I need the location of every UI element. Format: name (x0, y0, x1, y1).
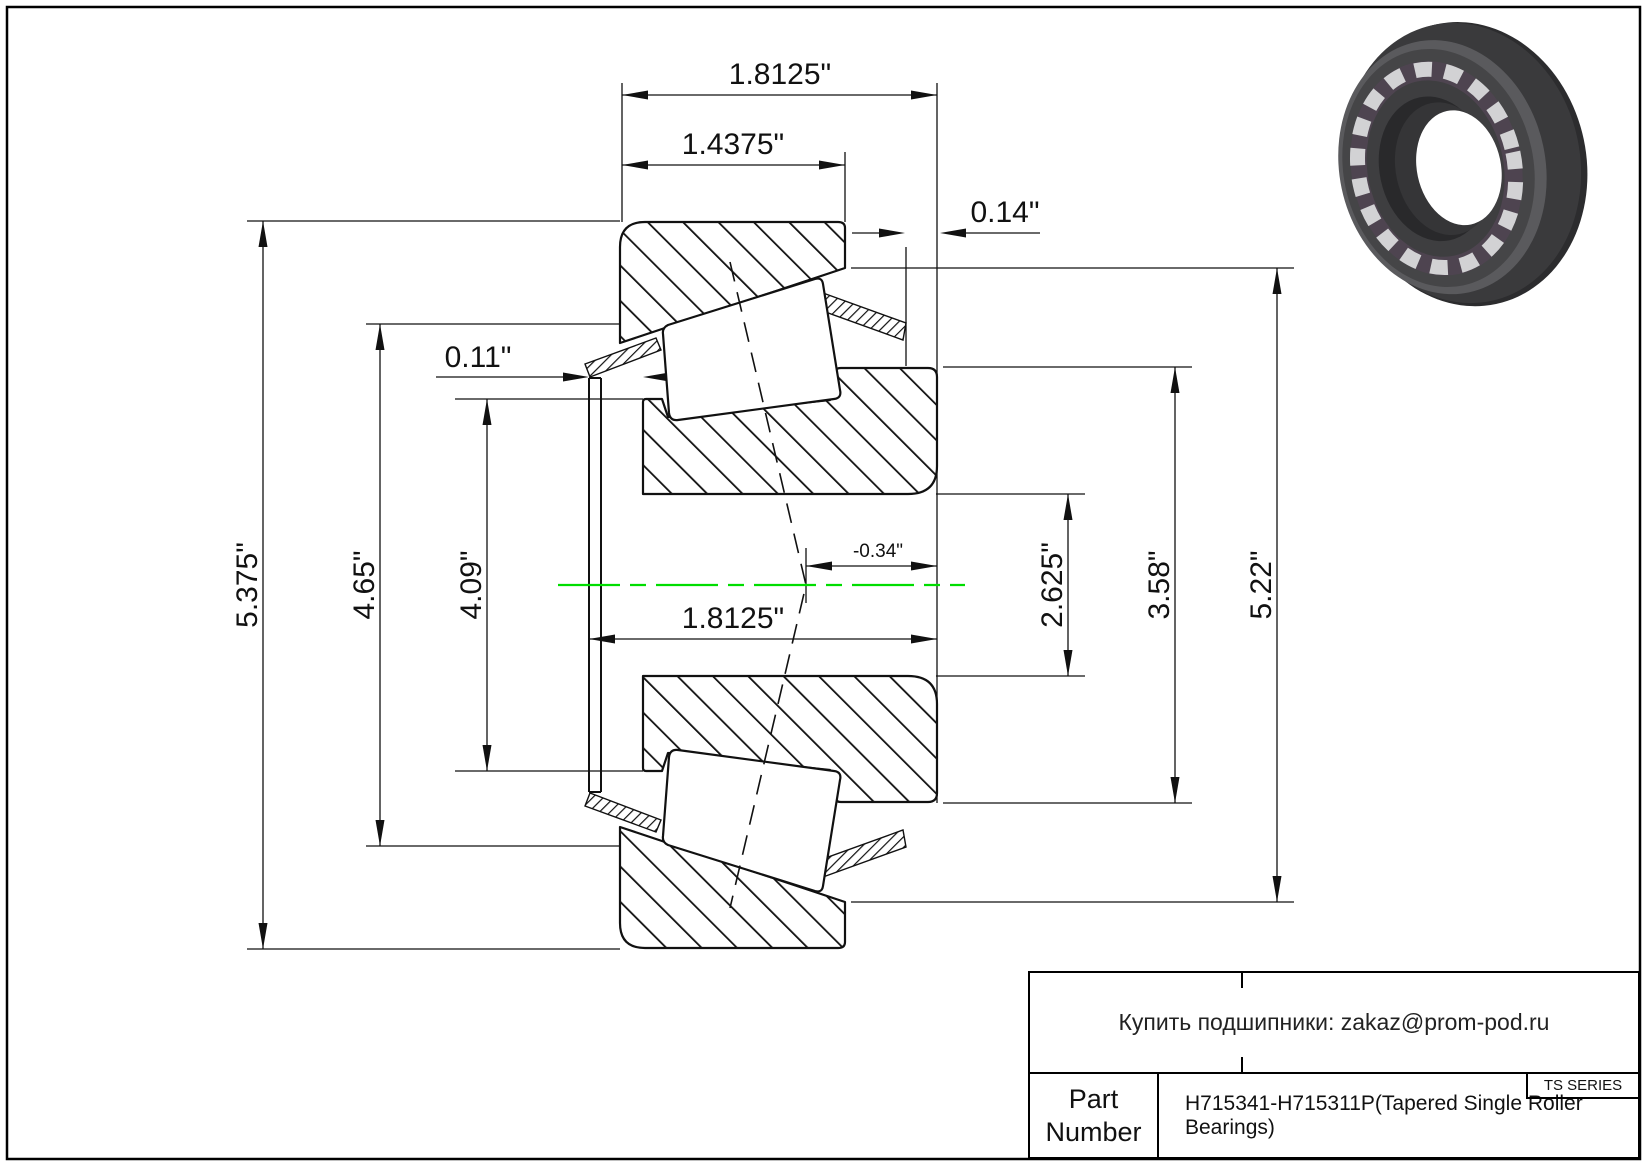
dim-cup-width: 1.4375" (682, 128, 784, 161)
cage-strip-bottom-right (820, 830, 906, 877)
dim-bore-dia: 2.625" (1036, 542, 1069, 628)
part-number-label: Part Number (1030, 1074, 1159, 1157)
dim-backing-dia: 3.58" (1143, 550, 1176, 619)
contact-cell: Купить подшипники: zakaz@prom-pod.ru (1030, 973, 1638, 1074)
dim-cup-front-dia: 5.22" (1245, 550, 1278, 619)
cage-strip-bottom-left (585, 793, 661, 832)
title-block-tick-top (1241, 973, 1243, 988)
dim-housing-dia: 4.65" (348, 550, 381, 619)
part-number-cell: TS SERIES H715341-H715311P(Tapered Singl… (1159, 1074, 1638, 1157)
drawing-sheet: 1.8125" 1.4375" 0.14" 0.11" 1.8125" -0.3… (0, 0, 1649, 1167)
title-block-bottom-row: Part Number TS SERIES H715341-H715311P(T… (1030, 1074, 1638, 1157)
dim-cage-protrusion: 0.14" (970, 196, 1039, 229)
dim-effective-center: -0.34" (853, 541, 903, 562)
title-block-tick-mid (1241, 1057, 1243, 1072)
dim-overall-width: 1.8125" (729, 58, 831, 91)
dim-outer-dia: 5.375" (231, 542, 264, 628)
dim-front-standout: 0.11" (445, 341, 512, 374)
bearing-3d-render (1312, 0, 1613, 330)
cage-strip-top-left (585, 338, 661, 377)
contact-text: Купить подшипники: zakaz@prom-pod.ru (1119, 1009, 1550, 1036)
dim-cone-width: 1.8125" (682, 602, 784, 635)
dim-rib-dia: 4.09" (455, 550, 488, 619)
cage-strip-top-right (820, 293, 906, 340)
title-block: Купить подшипники: zakaz@prom-pod.ru Par… (1028, 971, 1640, 1159)
series-badge: TS SERIES (1526, 1074, 1638, 1099)
